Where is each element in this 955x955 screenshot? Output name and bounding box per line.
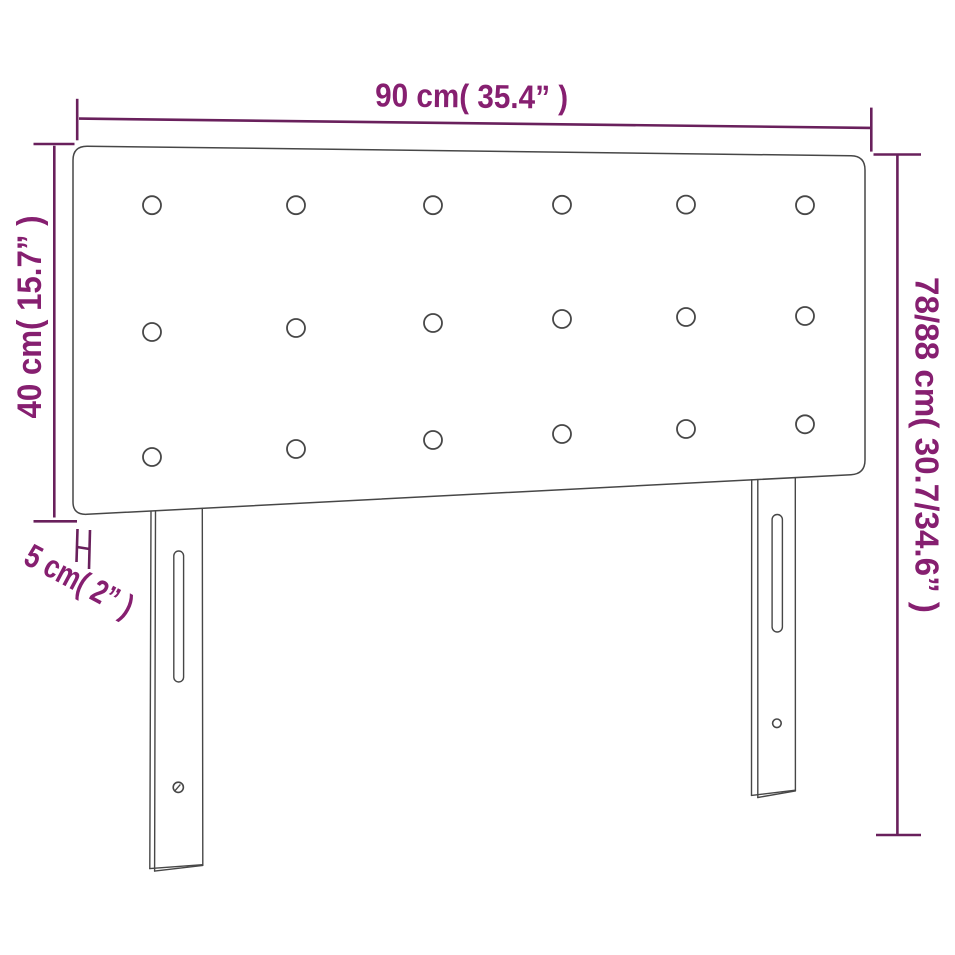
svg-text:90 cm( 35.4” ): 90 cm( 35.4” ) [375, 76, 568, 115]
svg-text:40 cm( 15.7” ): 40 cm( 15.7” ) [11, 216, 49, 419]
svg-text:78/88 cm( 30.7/34.6” ): 78/88 cm( 30.7/34.6” ) [909, 277, 946, 613]
